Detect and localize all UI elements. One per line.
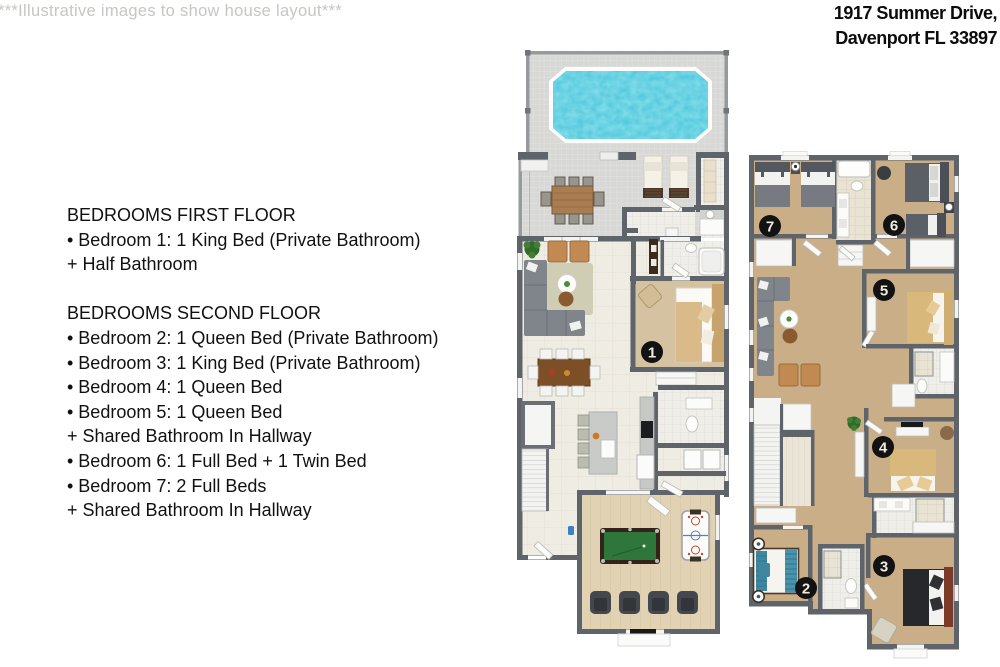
svg-text:3: 3: [880, 559, 888, 576]
svg-text:2: 2: [802, 581, 810, 598]
svg-text:6: 6: [890, 218, 898, 235]
svg-text:1: 1: [648, 345, 656, 362]
svg-text:5: 5: [880, 283, 888, 300]
svg-text:7: 7: [766, 219, 774, 236]
svg-text:4: 4: [879, 440, 888, 457]
